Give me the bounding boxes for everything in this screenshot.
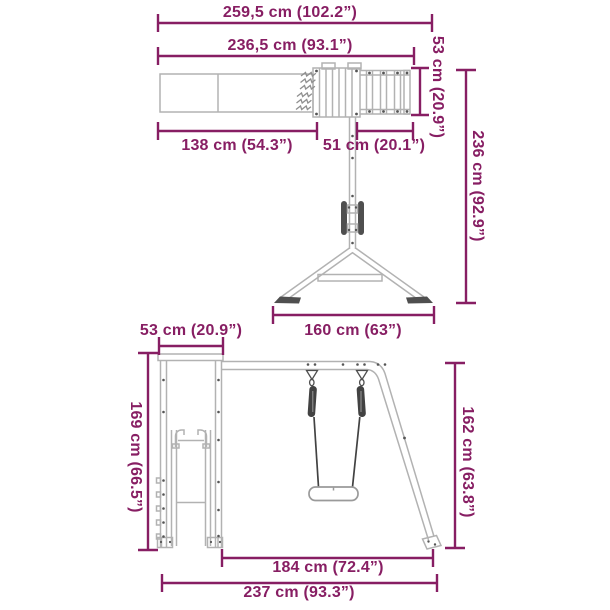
swing-frame-front-view — [222, 362, 441, 550]
dim-label-swing-section-width: 184 cm (72.4”) — [272, 559, 383, 577]
dim-label-total-depth: 236 cm (92.9”) — [468, 130, 486, 241]
screw-dots-front-view — [160, 363, 436, 546]
swing-front-view — [307, 371, 368, 501]
dimension-diagram: 259,5 cm (102.2”) 236,5 cm (93.1”) 53 cm… — [0, 0, 610, 610]
dim-label-total-width-top: 259,5 cm (102.2”) — [223, 4, 357, 22]
dim-label-tower-height: 169 cm (66.5”) — [126, 401, 144, 512]
swing-seat-top-view — [341, 201, 364, 235]
dim-label-leg-span: 160 cm (63”) — [304, 322, 402, 340]
dim-label-tower-depth: 53 cm (20.9”) — [140, 322, 242, 340]
dim-label-swing-frame-height: 162 cm (63.8”) — [458, 406, 476, 517]
slide-top-view — [160, 74, 313, 112]
diagram-linework — [0, 0, 610, 610]
dim-label-width-without-ladder: 236,5 cm (93.1”) — [227, 37, 352, 55]
top-view-drawing — [160, 63, 433, 304]
dim-label-total-width-bottom: 237 cm (93.3”) — [243, 584, 354, 602]
dim-label-slide-length: 138 cm (54.3”) — [181, 137, 292, 155]
dim-line-ladder-depth — [411, 68, 429, 115]
front-view-drawing — [157, 354, 442, 549]
platform-top-view — [313, 63, 361, 117]
dim-label-platform-depth: 51 cm (20.1”) — [323, 137, 425, 155]
aframe-legs-top-view — [274, 248, 433, 304]
slide-tower-front-view — [157, 354, 224, 548]
dim-label-ladder-depth: 53 cm (20.9”) — [428, 36, 446, 138]
ladder-top-view — [360, 71, 410, 115]
